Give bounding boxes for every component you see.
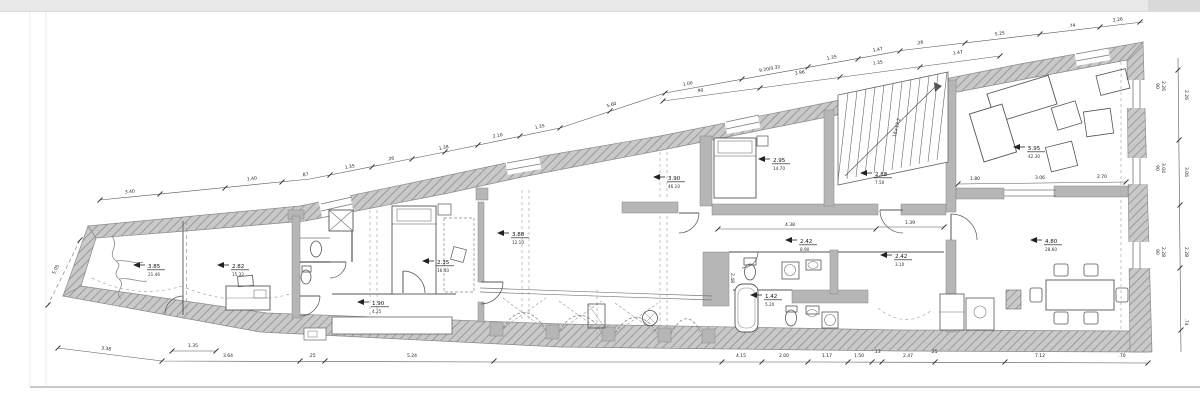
vault-pillar <box>546 325 559 339</box>
dim-label: 3.06 <box>1035 175 1045 181</box>
dim-label: 2.26 <box>1160 81 1166 91</box>
window-right-1 <box>1126 80 1152 108</box>
wall-corridor-top <box>712 204 878 215</box>
room-label-sub: 3.10 <box>895 262 905 267</box>
bed <box>392 206 436 294</box>
room-label-main: 3.85 <box>148 264 161 270</box>
dim-label: 1.80 <box>970 176 980 182</box>
dim-label: .87 <box>301 172 309 179</box>
room-label-main: 2.35 <box>437 260 450 266</box>
bed <box>714 138 756 198</box>
wall-corridor-top <box>901 204 946 215</box>
floorplan-svg: 3.401.40.871.35.261.382.101.355.601.009.… <box>0 0 1200 402</box>
room-label-main: 5.95 <box>1028 146 1041 152</box>
room-label-sub: 28.60 <box>1045 247 1057 252</box>
dim-label: 4.15 <box>736 353 746 359</box>
dim-label: .90 <box>696 88 704 95</box>
vault-pillar <box>490 322 503 336</box>
dim-label: .25 <box>308 353 315 359</box>
dim-label: 2.26 <box>1183 90 1189 100</box>
room-label-sub: 46.10 <box>668 184 680 189</box>
dim-label: 2.48 <box>729 273 735 283</box>
vault-pillar <box>658 328 671 342</box>
room-label-sub: 8.90 <box>800 247 810 252</box>
room-label-main: 1.90 <box>372 301 385 307</box>
dim-label: 90 <box>1154 165 1160 171</box>
room-label-main: 2.95 <box>773 158 786 164</box>
kitchen-block <box>1006 290 1021 309</box>
dim-label: .70 <box>1118 353 1125 359</box>
kitchen-counter <box>966 298 994 330</box>
room-label-sub: 12.10 <box>512 240 524 245</box>
dim-label: 90 <box>1154 83 1160 89</box>
dim-label: 3.64 <box>223 353 233 359</box>
dim-label: 3.04 <box>1160 163 1166 173</box>
wall-corridor-top <box>622 202 678 213</box>
room-label-main: 3.90 <box>668 176 681 182</box>
dim-label: 2.28 <box>1183 247 1189 257</box>
bathtub <box>735 284 758 332</box>
scanned-floorplan-page: 3.401.40.871.35.261.382.101.355.601.009.… <box>0 0 1200 402</box>
dim-label: 5.25 <box>995 30 1006 37</box>
dim-label: 1.39 <box>905 220 915 226</box>
dim-label: 2.26 <box>1113 16 1124 23</box>
room-label-sub: 4.25 <box>372 309 382 314</box>
top-bar <box>0 0 1200 11</box>
room-label-sub: 7.50 <box>875 180 885 185</box>
room-label-sub: 16.40 <box>437 268 449 273</box>
room-label-sub: 14.70 <box>773 166 785 171</box>
wall-interior <box>478 202 484 282</box>
wall-wc-right <box>830 250 838 294</box>
wall-divider <box>1054 186 1128 197</box>
window-right-2 <box>1126 158 1152 184</box>
wall-interior <box>478 302 484 322</box>
step-block <box>304 328 326 340</box>
dining-table <box>1046 280 1114 310</box>
dim-label: 3.40 <box>125 188 136 195</box>
dim-label: 7.12 <box>1035 353 1045 359</box>
wall-interior <box>292 216 300 318</box>
wall-pilaster <box>476 188 488 200</box>
dim-label: .26 <box>916 39 924 46</box>
dim-label: .74 <box>1183 318 1189 325</box>
room-label-main: 4.80 <box>1045 239 1058 245</box>
dim-label: .74 <box>1068 23 1076 30</box>
dim-label: 1.17 <box>822 353 832 359</box>
window-right-3 <box>1126 242 1152 268</box>
dim-label: 5.24 <box>407 353 417 359</box>
room-label-main: 1.42 <box>765 294 777 300</box>
dim-label: 3.38 <box>101 345 112 352</box>
top-bar-right <box>1148 0 1200 11</box>
room-label-sub: 21.46 <box>148 272 160 277</box>
dim-label: 2.47 <box>903 353 913 359</box>
vault-pillar <box>702 329 715 343</box>
dim-label: 2.28 <box>1160 247 1166 257</box>
room-label-main: 2.82 <box>232 264 244 270</box>
wall-interior <box>700 136 712 206</box>
room-label-main: 3.88 <box>512 232 525 238</box>
dim-label: .25 <box>930 349 937 355</box>
room-label-sub: 5.20 <box>765 302 775 307</box>
dim-label: 1.35 <box>188 343 198 349</box>
dim-label: 1.40 <box>247 175 258 182</box>
vault-pillar <box>602 327 615 341</box>
dim-label: 90 <box>1154 249 1160 255</box>
room-label-sub: 42.30 <box>1028 154 1040 159</box>
room-label-main: 2.88 <box>875 172 888 178</box>
dim-label: .13 <box>873 349 880 355</box>
dim-label: 2.70 <box>1097 174 1107 180</box>
wall-wc <box>703 252 729 306</box>
room-label-sub: 15.32 <box>232 272 244 277</box>
terrace-bench <box>332 317 452 334</box>
room-label-main: 2.42 <box>895 254 907 260</box>
wall-divider <box>956 188 1004 199</box>
dim-label: 3.06 <box>1183 167 1189 177</box>
dim-label: 1.50 <box>854 353 864 359</box>
dim-label: 4.38 <box>785 222 795 228</box>
wall-stair-left <box>824 110 834 206</box>
room-label-main: 2.42 <box>800 239 812 245</box>
dim-label: 2.00 <box>779 353 789 359</box>
